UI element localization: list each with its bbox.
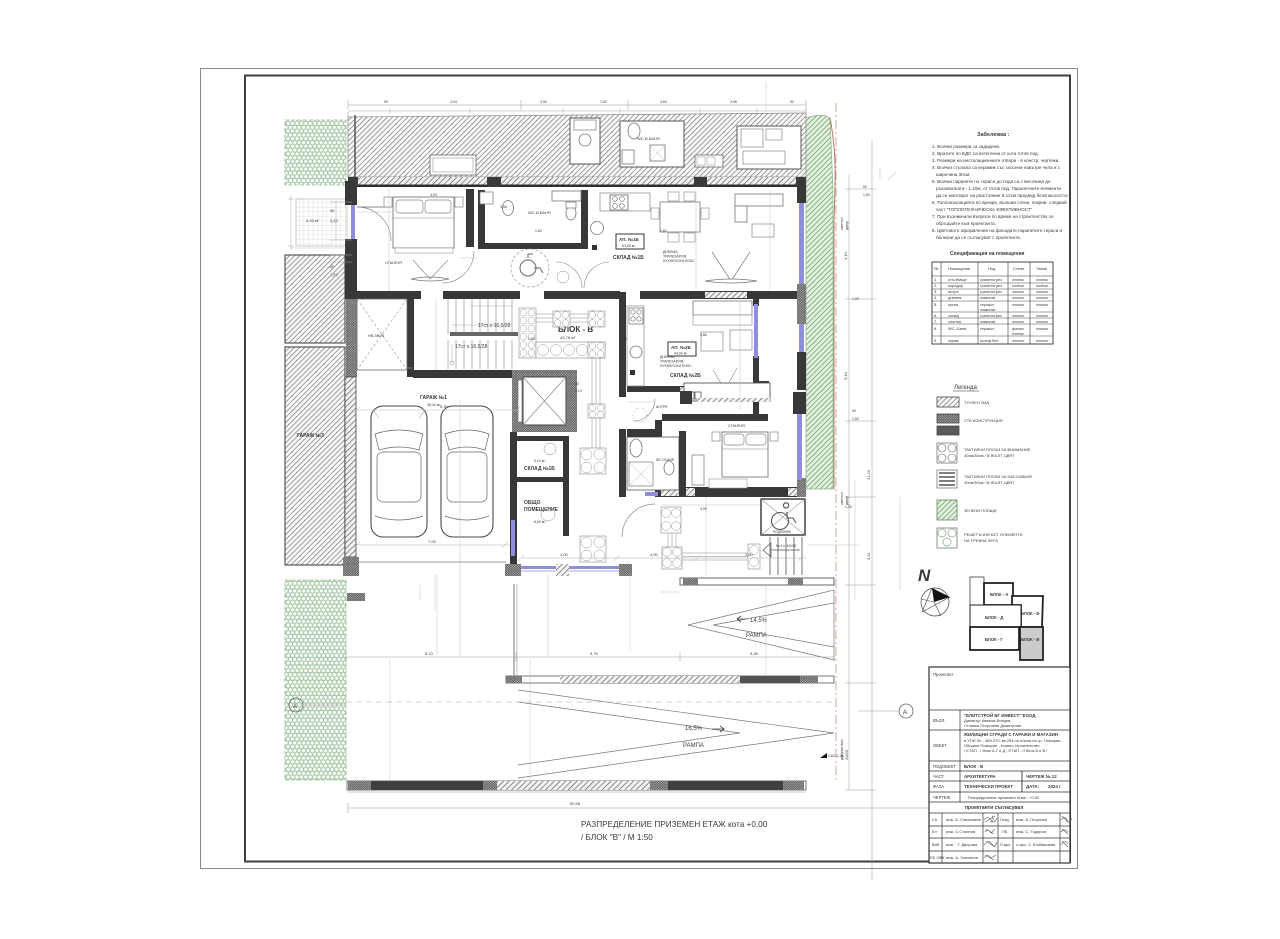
svg-text:НА ТРЕВНА ФУГА: НА ТРЕВНА ФУГА <box>964 538 998 543</box>
svg-text:3,14: 3,14 <box>843 371 848 380</box>
svg-text:5ст х 15/30: 5ст х 15/30 <box>776 543 797 548</box>
svg-text:БЛОК - Г: БЛОК - Г <box>985 637 1003 642</box>
svg-text:латекс: латекс <box>1012 338 1024 343</box>
svg-text:Геод.: Геод. <box>1000 817 1010 822</box>
svg-text:50,58: 50,58 <box>570 801 581 806</box>
svg-text:инж. С.Стоянов: инж. С.Стоянов <box>946 829 975 834</box>
svg-text:1,82: 1,82 <box>600 100 607 104</box>
svg-text:ДАТА:: ДАТА: <box>1026 784 1040 789</box>
svg-text:ФАЗА: ФАЗА <box>933 784 944 789</box>
svg-text:ЧЕРТЕЖ: ЧЕРТЕЖ <box>933 795 951 800</box>
svg-text:проектанти съгласувал: проектанти съгласувал <box>965 805 1023 811</box>
svg-text:ДНЕВНА,: ДНЕВНА, <box>663 250 678 254</box>
svg-text:6.: 6. <box>934 313 937 318</box>
svg-text:ЗЕЛЕНИ ПЛОЩИ: ЗЕЛЕНИ ПЛОЩИ <box>964 508 997 513</box>
svg-text:Под: Под <box>988 266 996 271</box>
svg-text:5,75: 5,75 <box>590 651 599 656</box>
svg-text:БЛОК - В: БЛОК - В <box>964 764 983 769</box>
svg-text:1,00: 1,00 <box>852 297 859 301</box>
svg-text:2.: 2. <box>934 283 937 288</box>
svg-text:БЛОК - Б: БЛОК - Б <box>1021 611 1039 616</box>
svg-text:5.: 5. <box>934 302 937 307</box>
svg-text:3,98: 3,98 <box>730 100 737 104</box>
svg-text:СПАЛНЯ: СПАЛНЯ <box>385 260 402 265</box>
svg-text:А: А <box>903 710 907 716</box>
svg-text:2024 г: 2024 г <box>1048 784 1061 789</box>
svg-text:1,82: 1,82 <box>660 229 667 233</box>
svg-text:ЕЕ.ОВК: ЕЕ.ОВК <box>930 855 945 860</box>
svg-text:спалня: спалня <box>948 319 961 324</box>
svg-text:коридор: коридор <box>948 283 964 288</box>
svg-text:А: А <box>293 704 297 710</box>
svg-text:ЖИЛИЩНИ СГРАДИ С ГАРАЖИ И МАГА: ЖИЛИЩНИ СГРАДИ С ГАРАЖИ И МАГАЗИН <box>963 732 1058 737</box>
svg-text:90: 90 <box>575 382 579 386</box>
svg-text:Ел: Ел <box>932 829 938 834</box>
svg-text:8. Цветовото оформление на фас: 8. Цветовото оформление на фасадите,пара… <box>932 228 1063 233</box>
svg-text:3,24 м²: 3,24 м² <box>534 459 546 463</box>
svg-text:стълбище: стълбище <box>948 277 967 282</box>
svg-text:ПОДОБЕКТ: ПОДОБЕКТ <box>933 764 956 769</box>
svg-text:ЧАСТ: ЧАСТ <box>933 774 944 779</box>
svg-text:ламинат: ламинат <box>980 307 996 312</box>
svg-text:латекс: латекс <box>1036 289 1048 294</box>
svg-text:7.: 7. <box>934 319 937 324</box>
svg-text:инж. . Г. Дворова: инж. . Г. Дворова <box>946 842 978 847</box>
svg-text:ВиК: ВиК <box>932 842 940 847</box>
svg-text:1,50: 1,50 <box>852 417 859 421</box>
svg-text:1,00: 1,00 <box>863 193 870 197</box>
svg-text:латекс: латекс <box>1012 277 1024 282</box>
svg-text:5,38: 5,38 <box>750 651 759 656</box>
svg-text:4,33 м²: 4,33 м² <box>306 218 320 223</box>
svg-text:20/20: 20/20 <box>844 749 849 760</box>
svg-text:л.арх. З. Юсбашиева: л.арх. З. Юсбашиева <box>1016 842 1056 847</box>
svg-text:30см/30см / В ЖЪЛТ ЦВЯТ: 30см/30см / В ЖЪЛТ ЦВЯТ <box>964 480 1015 485</box>
svg-text:кухня: кухня <box>948 302 958 307</box>
svg-text:Нб.ЗВУК: Нб.ЗВУК <box>368 333 385 338</box>
svg-text:1.: 1. <box>934 277 937 282</box>
svg-text:Л.арх.: Л.арх. <box>1000 842 1011 847</box>
svg-text:ТЕХНИЧЕСКИ ПРОЕКТ: ТЕХНИЧЕСКИ ПРОЕКТ <box>964 784 1013 789</box>
svg-text:1,65: 1,65 <box>528 337 535 341</box>
svg-text:ПОДЕМНИК: ПОДЕМНИК <box>773 530 791 534</box>
svg-text:инж. Б. Савхалиев: инж. Б. Савхалиев <box>946 817 981 822</box>
svg-text:44,04 м²: 44,04 м² <box>674 352 688 356</box>
svg-text:АП. №1Б: АП. №1Б <box>619 237 639 242</box>
svg-text:3,11: 3,11 <box>866 552 871 560</box>
svg-text:3,56: 3,56 <box>500 205 507 209</box>
svg-text:ТАКТИЛНИ ПЛОЧИ ЗА НАСОЧВАНЕ: ТАКТИЛНИ ПЛОЧИ ЗА НАСОЧВАНЕ <box>964 474 1033 479</box>
svg-text:СКЛАД №1Б: СКЛАД №1Б <box>524 466 555 472</box>
svg-text:3. Размери на инсталационните: 3. Размери на инсталационните отвори - в… <box>932 158 1060 163</box>
svg-text:инж. А. Георгиев: инж. А. Георгиев <box>1016 817 1047 822</box>
svg-text:50: 50 <box>384 100 388 104</box>
svg-text:БЛОК - А: БЛОК - А <box>990 592 1008 597</box>
svg-text:латекс: латекс <box>1036 319 1048 324</box>
svg-text:2,10: 2,10 <box>330 272 339 277</box>
svg-text:1,30: 1,30 <box>845 505 852 509</box>
svg-text:латекс: латекс <box>1012 313 1024 318</box>
svg-text:43,76 м²: 43,76 м² <box>560 335 576 340</box>
svg-text:АНТРЕ: АНТРЕ <box>656 405 668 409</box>
svg-text:Стени: Стени <box>1013 266 1024 271</box>
svg-text:3,86: 3,86 <box>700 333 707 337</box>
svg-text:инж. С. Тодоров: инж. С. Тодоров <box>1016 829 1046 834</box>
svg-text:1,80: 1,80 <box>620 337 627 341</box>
svg-text:ОБЕКТ: ОБЕКТ <box>933 743 947 748</box>
svg-text:1,82: 1,82 <box>535 229 542 233</box>
svg-text:латекс: латекс <box>1012 302 1024 307</box>
svg-text:дневна: дневна <box>948 295 962 300</box>
svg-text:4,00: 4,00 <box>650 552 659 557</box>
svg-text:латекс: латекс <box>1036 277 1048 282</box>
svg-text:5. Всички парапети по тераси д: 5. Всички парапети по тераси до пода са … <box>932 179 1051 184</box>
svg-text:5,30: 5,30 <box>440 404 449 409</box>
svg-text:балкони да се съгласуват с про: балкони да се съгласуват с проектанта. <box>936 235 1021 240</box>
svg-text:част "ТОПЛОТЕХНИЧЕСКА ЕФЕКТИВН: част "ТОПЛОТЕХНИЧЕСКА ЕФЕКТИВНОСТ" <box>936 207 1033 212</box>
svg-text:90: 90 <box>330 264 335 269</box>
svg-text:Легенда:: Легенда: <box>954 385 979 391</box>
svg-text:ТУХЛЕН ЗИД: ТУХЛЕН ЗИД <box>964 400 989 405</box>
svg-text:да се монтират на разстояние 8: да се монтират на разстояние 8,12см пред… <box>936 193 1068 198</box>
svg-text:СПАЛНЯ: СПАЛНЯ <box>728 423 745 428</box>
svg-text:гараж: гараж <box>948 338 959 343</box>
svg-text:Спецификация на помещения: Спецификация на помещения <box>950 250 1025 257</box>
svg-text:/ БЛОК "В" / М 1:50: / БЛОК "В" / М 1:50 <box>581 833 653 842</box>
svg-text:6,60 м²: 6,60 м² <box>534 520 546 524</box>
svg-text:50: 50 <box>863 185 867 189</box>
svg-text:БЛОК - Д: БЛОК - Д <box>985 615 1003 620</box>
svg-text:гранитогрес: гранитогрес <box>980 313 1002 318</box>
svg-text:ЧЕРТЕЖ № 12: ЧЕРТЕЖ № 12 <box>1026 774 1057 779</box>
svg-text:6. Топлоизолацията по врекри,: 6. Топлоизолацията по врекри, външни сте… <box>932 199 1067 205</box>
svg-text:латекс: латекс <box>1036 313 1048 318</box>
svg-text:ТАКТИЛНИ ПЛОЧИ ЗА ВНИМАНИЕ: ТАКТИЛНИ ПЛОЧИ ЗА ВНИМАНИЕ <box>964 447 1031 452</box>
svg-text:N: N <box>918 566 931 585</box>
svg-text:Таван: Таван <box>1036 266 1047 271</box>
svg-text:ТРАПЕЗАРИЯ,: ТРАПЕЗАРИЯ, <box>660 360 684 364</box>
svg-text:WC И БАНЯ: WC И БАНЯ <box>528 210 551 215</box>
svg-text:16,5%: 16,5% <box>685 726 703 732</box>
svg-text:латекс: латекс <box>1036 326 1048 331</box>
svg-text:3,60: 3,60 <box>660 100 667 104</box>
svg-text:РАМПА: РАМПА <box>683 743 704 749</box>
svg-text:гранитогрес: гранитогрес <box>980 277 1002 282</box>
svg-text:Проектант: Проектант <box>933 672 953 677</box>
svg-text:СКЛАД №2Б: СКЛАД №2Б <box>670 373 701 379</box>
svg-text:ВЪЗЛ.: ВЪЗЛ. <box>933 718 945 723</box>
svg-text:теракот: теракот <box>980 326 994 331</box>
svg-text:широчина 30см.: широчина 30см. <box>936 172 970 177</box>
svg-text:Забележка :: Забележка : <box>977 131 1010 138</box>
svg-text:№: № <box>934 266 938 271</box>
svg-text:латекс: латекс <box>1012 319 1024 324</box>
svg-text:гранитогрес: гранитогрес <box>980 289 1002 294</box>
svg-text:обръщайте към проектанта.: обръщайте към проектанта. <box>936 220 996 226</box>
svg-text:1,50: 1,50 <box>745 552 754 557</box>
svg-text:7. При възникнали въпроси по в: 7. При възникнали въпроси по време на ст… <box>932 214 1054 219</box>
svg-text:СТБ КОНСТРУКЦИЯ: СТБ КОНСТРУКЦИЯ <box>964 418 1003 423</box>
svg-text:9.: 9. <box>934 338 937 343</box>
svg-text:21,23: 21,23 <box>866 469 871 480</box>
svg-text:2,10: 2,10 <box>330 218 339 223</box>
svg-text:КУХНЕНСКИ БОКС: КУХНЕНСКИ БОКС <box>663 259 695 263</box>
svg-text:БЛОК - В: БЛОК - В <box>1021 637 1039 642</box>
svg-text:ламинат: ламинат <box>980 319 996 324</box>
svg-text:склад: склад <box>948 313 959 318</box>
svg-text:50: 50 <box>790 100 794 104</box>
svg-text:ДНЕВНА,: ДНЕВНА, <box>660 355 675 359</box>
svg-text:ПБ: ПБ <box>1002 829 1008 834</box>
svg-text:гранитогрес: гранитогрес <box>980 283 1002 288</box>
svg-text:3.: 3. <box>934 289 937 294</box>
svg-text:30см/30см / В ЖЪЛТ ЦВЯТ: 30см/30см / В ЖЪЛТ ЦВЯТ <box>964 453 1015 458</box>
svg-text:17ст х 16,5/28: 17ст х 16,5/28 <box>478 323 511 329</box>
svg-text:РЕШЕТЪЧНИ БЕТ. ЕЛЕМЕНТИ: РЕШЕТЪЧНИ БЕТ. ЕЛЕМЕНТИ <box>964 532 1023 537</box>
svg-text:4,53: 4,53 <box>430 193 437 197</box>
svg-text:ламинат: ламинат <box>980 295 996 300</box>
svg-text:латекс: латекс <box>1036 338 1048 343</box>
svg-text:антре: антре <box>948 289 959 294</box>
svg-text:8.: 8. <box>934 326 937 331</box>
svg-text:двор: двор <box>844 220 849 230</box>
svg-text:WC И БАНЯ: WC И БАНЯ <box>656 458 675 462</box>
svg-text:СКЛАД №1Б: СКЛАД №1Б <box>613 255 644 261</box>
svg-text:2,19: 2,19 <box>575 389 582 393</box>
svg-text:4,53: 4,53 <box>450 100 457 104</box>
svg-text:Помещения: Помещения <box>948 266 970 271</box>
svg-text:5,13: 5,13 <box>425 651 434 656</box>
svg-text:17ст х 16,5/28: 17ст х 16,5/28 <box>455 344 488 350</box>
svg-text:Стоянка Георгиева Димитрова: Стоянка Георгиева Димитрова <box>964 723 1022 728</box>
svg-text:латекс: латекс <box>1012 283 1024 288</box>
svg-text:РАЗПРЕДЕЛЕНИЕ ПРИЗЕМЕН ЕТАЖ к: РАЗПРЕДЕЛЕНИЕ ПРИЗЕМЕН ЕТАЖ кота +0,00 <box>581 820 768 829</box>
svg-text:ГАРАЖ №1: ГАРАЖ №1 <box>420 395 447 401</box>
svg-text:/ ЕТАП - I блок А,Г и Д ; ЕТА: / ЕТАП - I блок А,Г и Д ; ЕТАП - II блок… <box>964 748 1048 753</box>
svg-text:1. Всички размери са зададени.: 1. Всички размери са зададени. <box>932 144 1000 149</box>
svg-text:латекс: латекс <box>1036 302 1048 307</box>
svg-text:шлиф.бет.: шлиф.бет. <box>980 338 999 343</box>
svg-text:латекс: латекс <box>1036 295 1048 300</box>
svg-text:ТРАПЕЗАРИЯ,: ТРАПЕЗАРИЯ, <box>663 255 687 259</box>
svg-text:двор: двор <box>844 495 849 505</box>
svg-text:4,10: 4,10 <box>843 251 848 260</box>
svg-text:АРХИТЕКТУРА: АРХИТЕКТУРА <box>964 774 996 779</box>
svg-text:63,26 м²: 63,26 м² <box>622 244 636 248</box>
svg-text:14,5%: 14,5% <box>750 618 768 624</box>
svg-text:ОБЩО: ОБЩО <box>524 500 541 506</box>
svg-text:РАМПА: РАМПА <box>746 633 767 639</box>
svg-text:инж. А. Златинов: инж. А. Златинов <box>946 855 978 860</box>
svg-text:4,00: 4,00 <box>700 507 707 511</box>
svg-text:4.: 4. <box>934 295 937 300</box>
svg-text:ГАРАЖ №3: ГАРАЖ №3 <box>297 433 324 439</box>
svg-text:АП. №2Б: АП. №2Б <box>671 345 691 350</box>
svg-text:латекс: латекс <box>1012 289 1024 294</box>
svg-text:1,00: 1,00 <box>560 552 569 557</box>
svg-text:WC- Баня: WC- Баня <box>948 326 966 331</box>
svg-text:КУХНЕНСКИ БОКС: КУХНЕНСКИ БОКС <box>660 364 692 368</box>
svg-text:7,00: 7,00 <box>428 539 437 544</box>
svg-text:латекс: латекс <box>1012 331 1024 336</box>
svg-text:0,82=1,06: 0,82=1,06 <box>828 754 844 758</box>
svg-text:3,50: 3,50 <box>540 100 547 104</box>
svg-text:латекс: латекс <box>1036 283 1048 288</box>
svg-text:ръкохватката - 1,10м, от готов: ръкохватката - 1,10м, от готов под. Пара… <box>936 186 1061 191</box>
svg-text:СК: СК <box>932 817 938 822</box>
svg-text:2. Вратите по БДС са изтеглени: 2. Вратите по БДС са изтеглени от кота г… <box>932 151 1039 156</box>
svg-text:латекс: латекс <box>1012 295 1024 300</box>
svg-text:WC И БАНЯ: WC И БАНЯ <box>637 136 660 141</box>
svg-text:Разпределение приземен етаж -: Разпределение приземен етаж - +0,00 <box>968 795 1040 800</box>
svg-text:90: 90 <box>852 409 856 413</box>
svg-text:4. Всички стъпала са керамик с: 4. Всички стъпала са керамик със скосени… <box>932 165 1061 170</box>
svg-text:90: 90 <box>330 208 335 213</box>
